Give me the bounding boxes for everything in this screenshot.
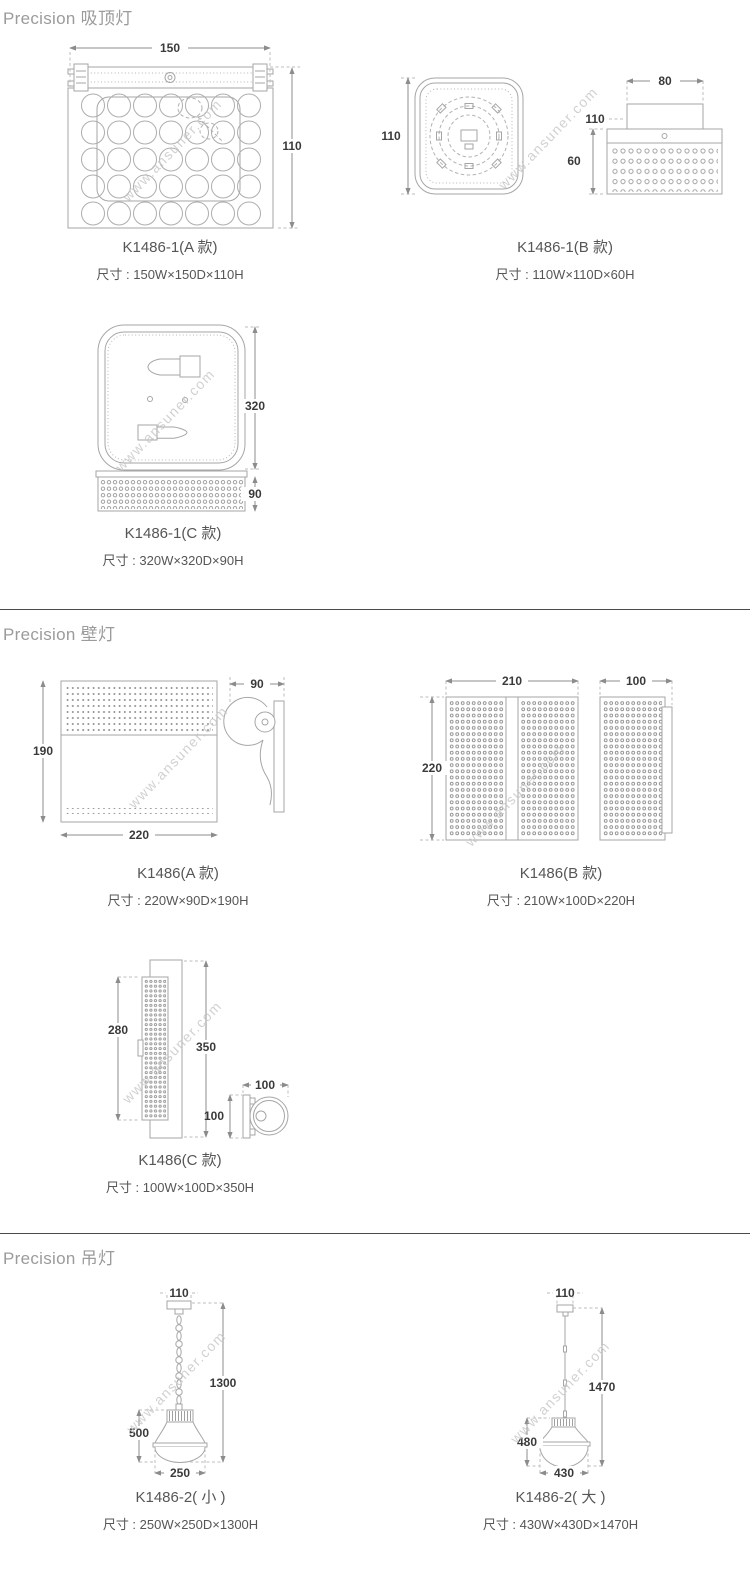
model-size: 尺寸 : 110W×110D×60H (420, 264, 710, 283)
model-size: 尺寸 : 220W×90D×190H (28, 890, 328, 909)
dim-label-depth: 90 (250, 677, 264, 691)
dim-label-width: 220 (129, 828, 149, 842)
wall-b-front-view (446, 697, 578, 840)
dim-label-plan: 110 (381, 129, 401, 143)
ceiling-b-caption: K1486-1(B 款) 尺寸 : 110W×110D×60H (420, 236, 710, 283)
dim-label-total: 1300 (210, 1376, 237, 1390)
section-heading-wall: Precision 壁灯 (3, 620, 115, 645)
model-size: 尺寸 : 150W×150D×110H (25, 264, 315, 283)
dim-label-height: 350 (196, 1040, 216, 1054)
section-heading-ceiling: Precision 吸顶灯 (3, 4, 133, 29)
pendant-large-fixture (538, 1305, 590, 1467)
wall-c-side-view (243, 1095, 288, 1138)
dim-label-canopy: 110 (555, 1286, 575, 1300)
ceiling-a-caption: K1486-1(A 款) 尺寸 : 150W×150D×110H (25, 236, 315, 283)
lamp-spec-sheet: Precision 吸顶灯 (0, 0, 750, 1575)
wall-a-front-view (61, 681, 217, 822)
dim-label-lamp: 480 (517, 1435, 537, 1449)
ceiling-b-plan-view (415, 78, 523, 194)
ceiling-b-drawing: 110 80 110 60 (375, 58, 735, 208)
ceiling-a-drawing: 150 110 (30, 38, 320, 243)
pendant-large-drawing: 110 1470 480 430 (486, 1280, 651, 1485)
dim-label-base: 90 (248, 487, 262, 501)
dim-label-height: 320 (245, 399, 265, 413)
dim-label-width: 150 (160, 41, 180, 55)
wall-a-side-view (224, 697, 284, 812)
dim-label-cap: 110 (585, 112, 605, 126)
dim-label-canopy: 110 (169, 1286, 189, 1300)
section-heading-pendant: Precision 吊灯 (3, 1244, 115, 1269)
ceiling-c-plan-view (96, 325, 247, 511)
wall-a-caption: K1486(A 款) 尺寸 : 220W×90D×190H (28, 862, 328, 909)
model-name: K1486-1(B 款) (420, 236, 710, 257)
model-name: K1486(C 款) (70, 1149, 290, 1170)
wall-b-drawing: 210 220 100 (400, 665, 700, 855)
ceiling-c-dimensions: 320 90 (239, 327, 271, 511)
model-size: 尺寸 : 430W×430D×1470H (478, 1514, 643, 1533)
dim-label-height: 110 (282, 139, 302, 153)
dim-label-height: 220 (422, 761, 442, 775)
model-name: K1486(A 款) (28, 862, 328, 883)
pendant-small-caption: K1486-2( 小 ) 尺寸 : 250W×250D×1300H (98, 1486, 263, 1533)
wall-c-caption: K1486(C 款) 尺寸 : 100W×100D×350H (70, 1149, 290, 1196)
section-divider (0, 609, 750, 610)
wall-b-side-view (600, 697, 672, 840)
model-name: K1486-2( 小 ) (98, 1486, 263, 1507)
dim-label-height: 60 (567, 154, 581, 168)
model-name: K1486-1(A 款) (25, 236, 315, 257)
dim-label-width: 210 (502, 674, 522, 688)
dim-label-lamp: 500 (129, 1426, 149, 1440)
pendant-large-caption: K1486-2( 大 ) 尺寸 : 430W×430D×1470H (478, 1486, 643, 1533)
dim-label-total: 1470 (589, 1380, 616, 1394)
dim-label-width: 250 (170, 1466, 190, 1480)
wall-c-drawing: 280 350 100 100 (90, 945, 320, 1150)
wall-a-drawing: 190 220 90 (20, 665, 320, 855)
dim-label-side-left: 100 (204, 1109, 224, 1123)
model-name: K1486(B 款) (411, 862, 711, 883)
dim-label-width: 430 (554, 1466, 574, 1480)
wall-b-caption: K1486(B 款) 尺寸 : 210W×100D×220H (411, 862, 711, 909)
section-divider (0, 1233, 750, 1234)
dim-label-height: 190 (33, 744, 53, 758)
model-name: K1486-2( 大 ) (478, 1486, 643, 1507)
dim-label-panel: 280 (108, 1023, 128, 1037)
model-size: 尺寸 : 210W×100D×220H (411, 890, 711, 909)
wall-c-front-view (138, 960, 182, 1138)
dim-label-side-top: 100 (255, 1078, 275, 1092)
ceiling-c-caption: K1486-1(C 款) 尺寸 : 320W×320D×90H (53, 522, 293, 569)
pendant-small-drawing: 110 1300 500 250 (100, 1280, 265, 1485)
model-size: 尺寸 : 320W×320D×90H (53, 550, 293, 569)
model-size: 尺寸 : 250W×250D×1300H (98, 1514, 263, 1533)
dim-label-top: 80 (658, 74, 672, 88)
ceiling-a-fixture (68, 64, 273, 228)
dim-label-depth: 100 (626, 674, 646, 688)
pendant-small-fixture (153, 1301, 207, 1462)
ceiling-c-drawing: 320 90 (55, 315, 290, 525)
model-size: 尺寸 : 100W×100D×350H (70, 1177, 290, 1196)
ceiling-b-side-view (607, 104, 722, 194)
model-name: K1486-1(C 款) (53, 522, 293, 543)
